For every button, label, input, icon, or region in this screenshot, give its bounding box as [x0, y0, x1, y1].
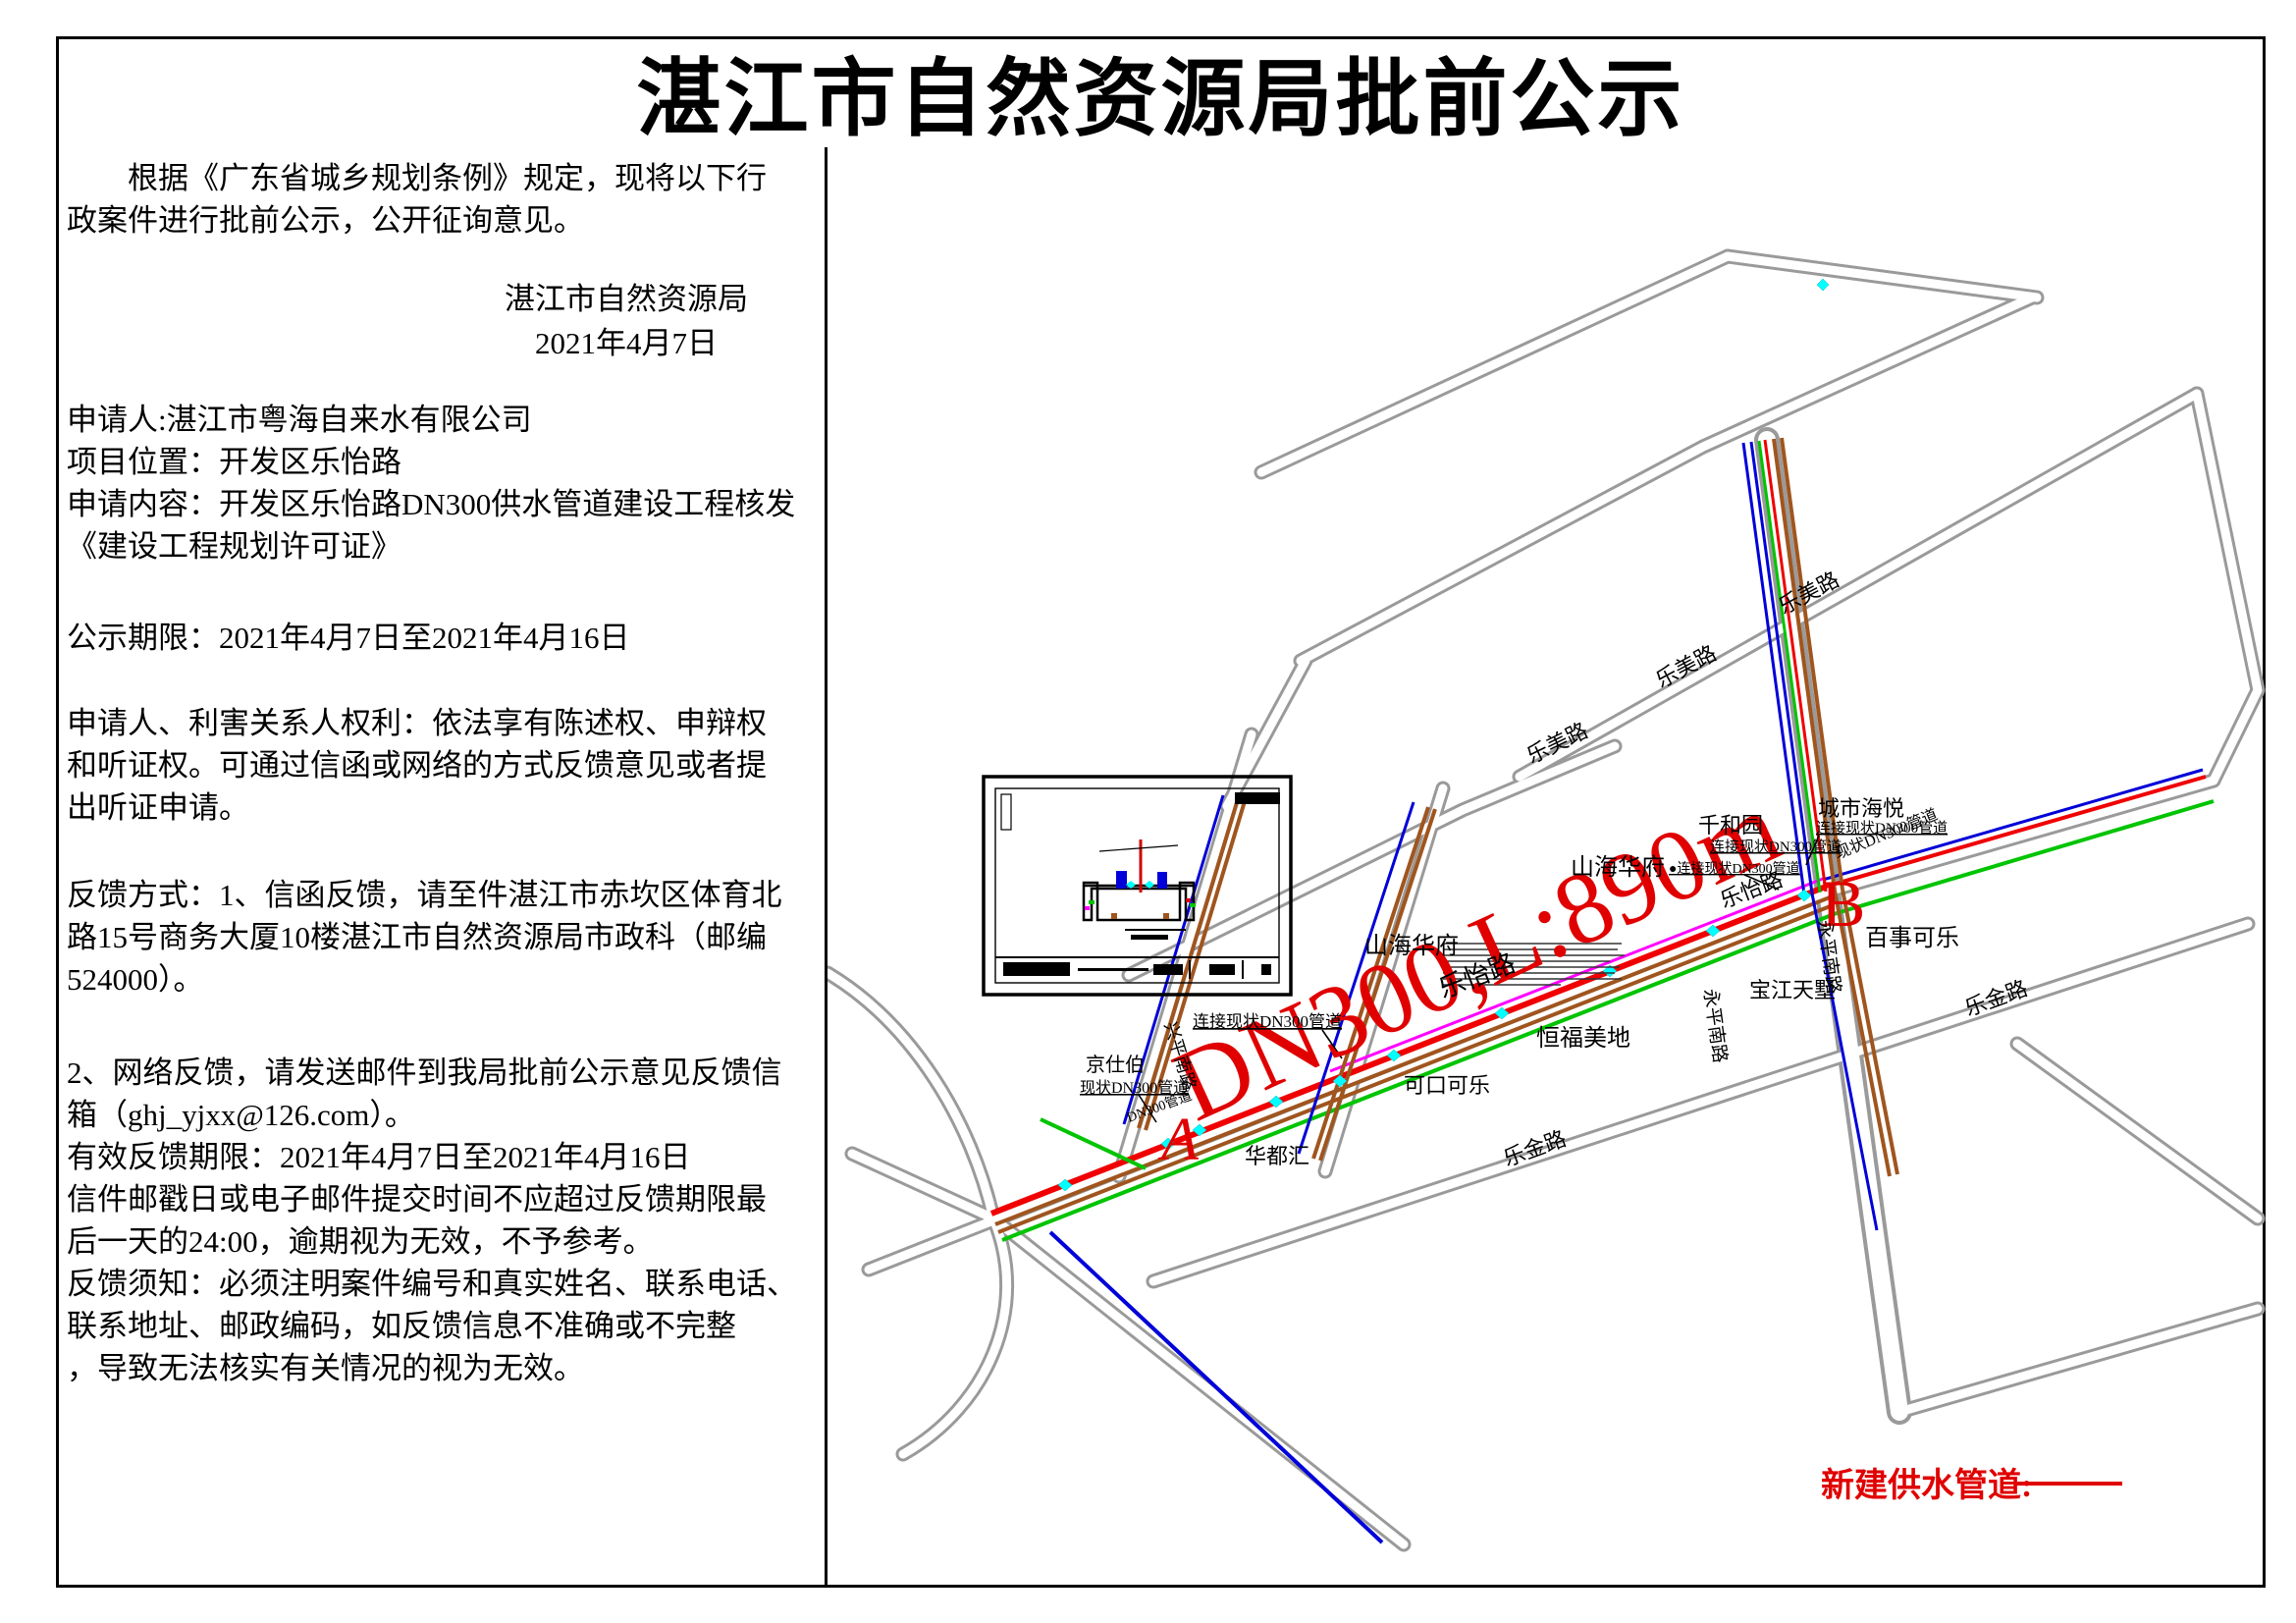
signature-date: 2021年4月7日	[479, 321, 774, 365]
site-plan-map: DN300,L:890m A B 新建供水管道: 乐美路乐美路乐美路乐怡路乐怡路…	[828, 147, 2268, 1585]
notice-intro: 根据《广东省城乡规划条例》规定，现将以下行 政案件进行批前公示，公开征询意见。	[67, 157, 821, 242]
map-label: 百事可乐	[1865, 925, 1959, 951]
map-label: ●连接现状DN300管道	[1669, 860, 1800, 877]
inset-section-drawing	[1084, 839, 1196, 940]
map-label: 乐金路	[1961, 976, 2031, 1021]
map-label: 连接现状DN300管道	[1193, 1012, 1342, 1031]
notice-period: 公示期限：2021年4月7日至2021年4月16日	[67, 617, 821, 659]
legend-label: 新建供水管道:	[1821, 1467, 2032, 1504]
page-title: 湛江市自然资源局批前公示	[637, 29, 1685, 152]
signature-block: 湛江市自然资源局 2021年4月7日	[479, 277, 774, 365]
map-label: 连接现状DN300管道	[1710, 839, 1842, 855]
map-legend: 新建供水管道:	[1821, 1467, 2122, 1504]
map-label: 山海华府	[1364, 933, 1459, 959]
title-band: 湛江市自然资源局批前公示	[56, 36, 2266, 144]
notice-feedback-mail: 反馈方式：1、信函反馈，请至件湛江市赤坎区体育北 路15号商务大厦10楼湛江市自…	[67, 874, 821, 1001]
map-label: 华都汇	[1245, 1144, 1309, 1168]
inset-title-chip	[1235, 792, 1280, 804]
map-marker-a: A	[1157, 1107, 1200, 1173]
notice-rights: 申请人、利害关系人权利：依法享有陈述权、申辩权 和听证权。可通过信函或网络的方式…	[67, 702, 821, 829]
notice-application: 申请人:湛江市粤海自来水有限公司 项目位置：开发区乐怡路 申请内容：开发区乐怡路…	[67, 399, 821, 568]
map-label: 山海华府	[1571, 854, 1665, 881]
map-label: 可口可乐	[1404, 1073, 1490, 1098]
map-label: 京仕伯	[1086, 1054, 1145, 1076]
notice-feedback-online: 2、网络反馈，请发送邮件到我局批前公示意见反馈信 箱（ghj_yjxx@126.…	[67, 1052, 821, 1389]
map-label: 永平南路	[1699, 988, 1731, 1064]
notice-text-panel: 根据《广东省城乡规划条例》规定，现将以下行 政案件进行批前公示，公开征询意见。 …	[59, 147, 828, 1585]
map-label: 城市海悦	[1818, 796, 1904, 821]
map-label: 千和园	[1698, 813, 1763, 838]
map-label: 宝江天墅	[1749, 978, 1836, 1002]
signature-org: 湛江市自然资源局	[479, 277, 774, 321]
cyan-spot	[1817, 279, 1829, 291]
cross-section-inset	[984, 777, 1291, 995]
map-label: 恒福美地	[1536, 1025, 1630, 1052]
